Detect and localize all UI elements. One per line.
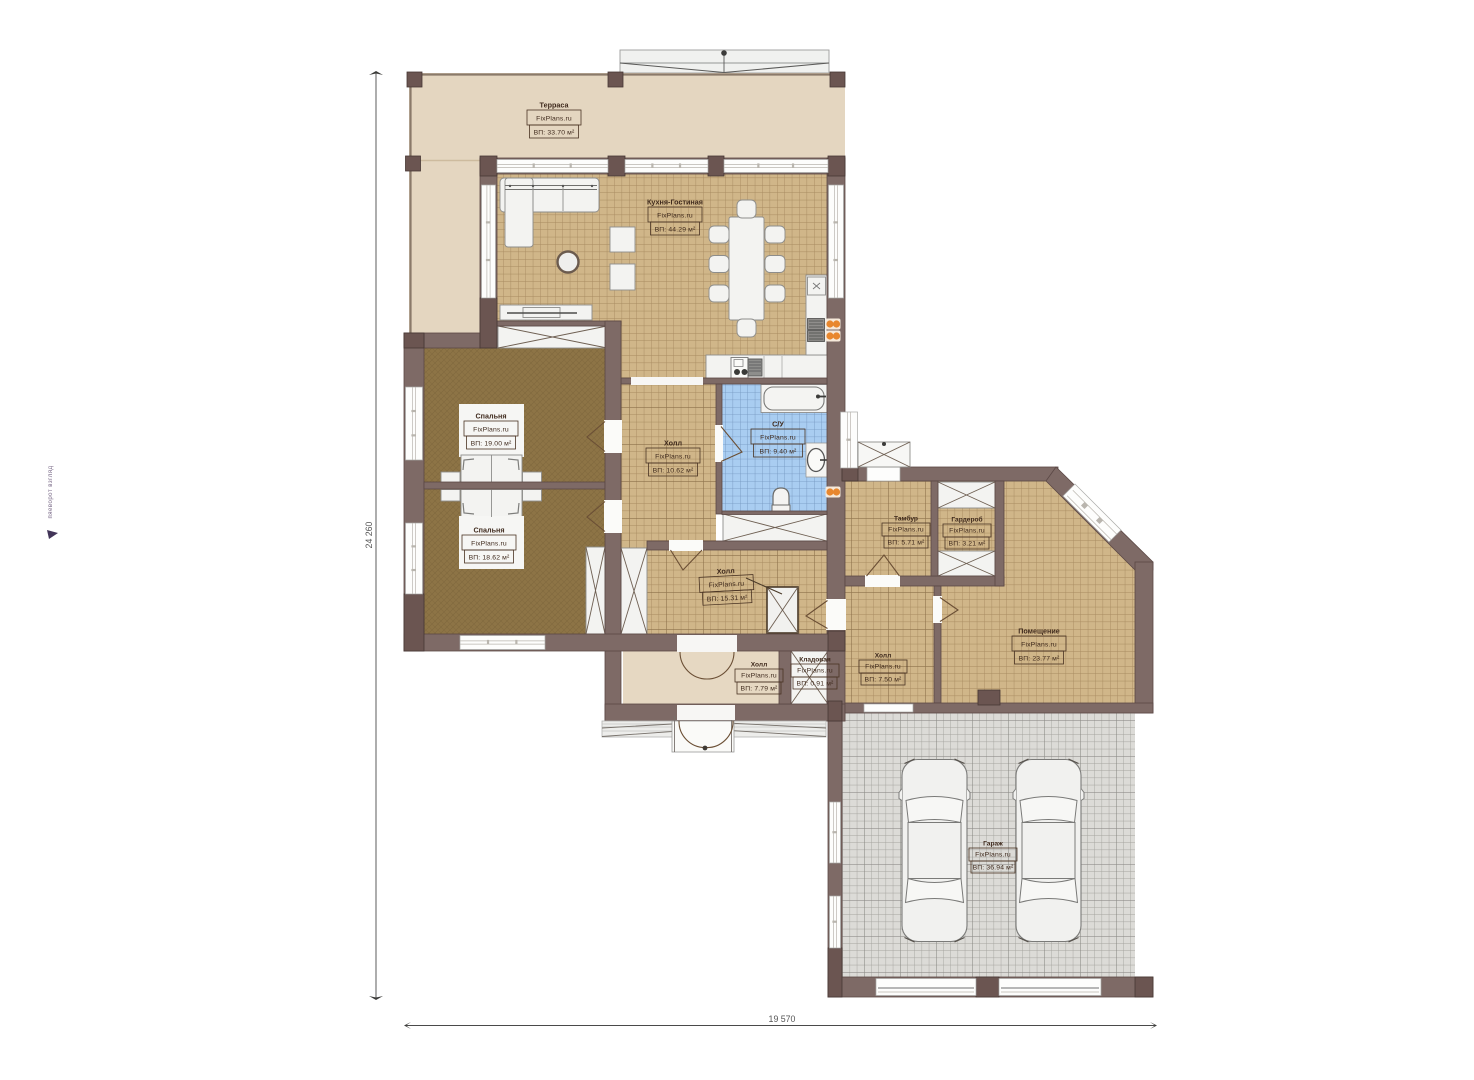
svg-text:24 260: 24 260 [364,521,374,548]
svg-text:FixPlans.ru: FixPlans.ru [657,213,693,220]
svg-text:Спальня: Спальня [473,526,504,535]
svg-text:ВП: 10.62 м²: ВП: 10.62 м² [653,468,694,475]
svg-text:FixPlans.ru: FixPlans.ru [975,852,1011,859]
svg-text:Терраса: Терраса [540,101,570,110]
svg-text:Холл: Холл [751,662,768,669]
svg-text:FixPlans.ru: FixPlans.ru [760,435,796,442]
svg-text:С/У: С/У [772,420,784,429]
svg-text:ВП: 33.70 м²: ВП: 33.70 м² [534,130,575,137]
svg-text:ВП: 23.77 м²: ВП: 23.77 м² [1019,656,1060,663]
svg-text:FixPlans.ru: FixPlans.ru [865,664,901,671]
svg-text:FixPlans.ru: FixPlans.ru [471,541,507,548]
svg-text:FixPlans.ru: FixPlans.ru [741,673,777,680]
svg-text:пяеворот взгляд: пяеворот взгляд [48,466,54,519]
svg-text:Кладовая: Кладовая [799,657,831,664]
svg-text:ВП: 3.21 м²: ВП: 3.21 м² [949,541,986,548]
svg-text:19 570: 19 570 [769,1014,796,1024]
svg-text:Холл: Холл [716,566,735,576]
svg-text:FixPlans.ru: FixPlans.ru [473,427,509,434]
svg-text:Кухня-Гостиная: Кухня-Гостиная [647,198,703,207]
svg-text:ВП: 9.40 м²: ВП: 9.40 м² [760,449,797,456]
svg-text:Холл: Холл [875,653,892,660]
svg-text:ВП: 36.94 м²: ВП: 36.94 м² [973,865,1014,872]
svg-text:ВП: 5.71 м²: ВП: 5.71 м² [888,540,925,547]
svg-text:FixPlans.ru: FixPlans.ru [536,116,572,123]
svg-text:Холл: Холл [664,439,682,448]
svg-text:FixPlans.ru: FixPlans.ru [797,668,833,675]
svg-text:FixPlans.ru: FixPlans.ru [949,528,985,535]
svg-text:Помещение: Помещение [1018,627,1060,636]
svg-text:FixPlans.ru: FixPlans.ru [655,454,691,461]
svg-text:ВП: 19.00 м²: ВП: 19.00 м² [471,441,512,448]
svg-text:FixPlans.ru: FixPlans.ru [1021,642,1057,649]
svg-text:ВП: 18.62 м²: ВП: 18.62 м² [469,555,510,562]
svg-text:ВП: 7.50 м²: ВП: 7.50 м² [865,677,902,684]
svg-text:ВП: 7.79 м²: ВП: 7.79 м² [741,686,778,693]
svg-text:Гардероб: Гардероб [951,516,982,524]
svg-text:Спальня: Спальня [475,412,506,421]
svg-text:ВП: 44.29 м²: ВП: 44.29 м² [655,227,696,234]
svg-text:Тамбур: Тамбур [894,515,918,523]
svg-text:ВП: 0.91 м²: ВП: 0.91 м² [797,681,834,688]
svg-text:FixPlans.ru: FixPlans.ru [888,527,924,534]
svg-text:Гараж: Гараж [983,841,1003,848]
